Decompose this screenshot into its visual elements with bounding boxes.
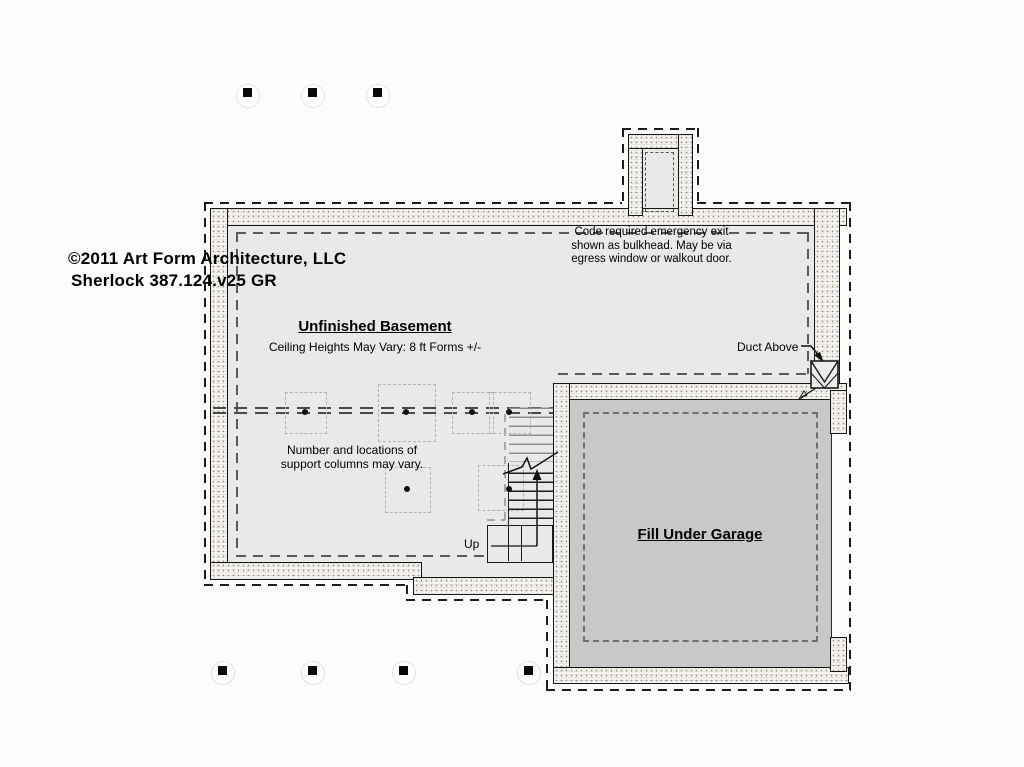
stair-treads-lower (509, 465, 553, 526)
footing-bulkhead-right (697, 128, 699, 204)
footing-top-left (204, 202, 622, 204)
egress-note: Code required emergency exit shown as bu… (560, 226, 743, 267)
garage-wall-right-stub-bottom (830, 637, 847, 672)
stair-left-stringer (508, 463, 509, 526)
support-column (302, 409, 308, 415)
garage-wall-right-stub-top (830, 390, 847, 434)
ceiling-note: Ceiling Heights May Vary: 8 ft Forms +/- (250, 340, 500, 354)
garage-label: Fill Under Garage (600, 526, 800, 543)
bulkhead-inner-dash (645, 152, 674, 212)
wall-right (814, 208, 840, 397)
deck-post-footing (399, 666, 408, 675)
footing-garage-left (546, 600, 548, 691)
footing-bottom-garage (546, 689, 851, 691)
support-column (404, 486, 410, 492)
footing-bulkhead-left (622, 128, 624, 204)
garage-wall-top (553, 383, 847, 400)
inner-dash-bottom (236, 555, 487, 557)
deck-post-footing (524, 666, 533, 675)
inner-dash-right (807, 232, 809, 374)
garage-wall-left (553, 383, 570, 684)
stair-landing-dash (487, 519, 505, 521)
stair-landing (487, 525, 553, 563)
basement-floor-step-extension (420, 562, 553, 578)
wall-bottom-step (413, 577, 570, 595)
support-column (506, 409, 512, 415)
duct-label: Duct Above (737, 340, 798, 354)
garage-wall-bottom (553, 667, 849, 684)
wall-bottom-left (210, 562, 422, 580)
deck-post-footing (218, 666, 227, 675)
support-column (403, 409, 409, 415)
stair-treads-upper (509, 400, 553, 462)
deck-post-footing (308, 666, 317, 675)
bulkhead-wall-right (678, 134, 693, 216)
plan-model-number: Sherlock 387.124.v25 GR (71, 271, 277, 291)
columns-note: Number and locations of support columns … (272, 443, 432, 471)
inner-dash-garage-top-side (558, 373, 809, 375)
room-title: Unfinished Basement (275, 318, 475, 335)
deck-post-footing (308, 88, 317, 97)
support-column (506, 486, 512, 492)
stair-landing-divider (521, 526, 522, 561)
deck-post-footing (373, 88, 382, 97)
deck-post-footing (243, 88, 252, 97)
footing-top-right (697, 202, 851, 204)
footing-step-bottom (406, 599, 548, 601)
wall-top (210, 208, 847, 226)
footing-bulkhead-top (622, 128, 699, 130)
copyright-line: ©2011 Art Form Architecture, LLC (68, 249, 346, 269)
footing-bottom-left (204, 584, 408, 586)
footing-step-left (406, 585, 408, 601)
stair-landing-divider (508, 526, 509, 561)
support-column (469, 409, 475, 415)
footing-right (849, 202, 851, 690)
up-label: Up (464, 537, 479, 551)
floor-plan-canvas: ©2011 Art Form Architecture, LLC Sherloc… (0, 0, 1024, 767)
